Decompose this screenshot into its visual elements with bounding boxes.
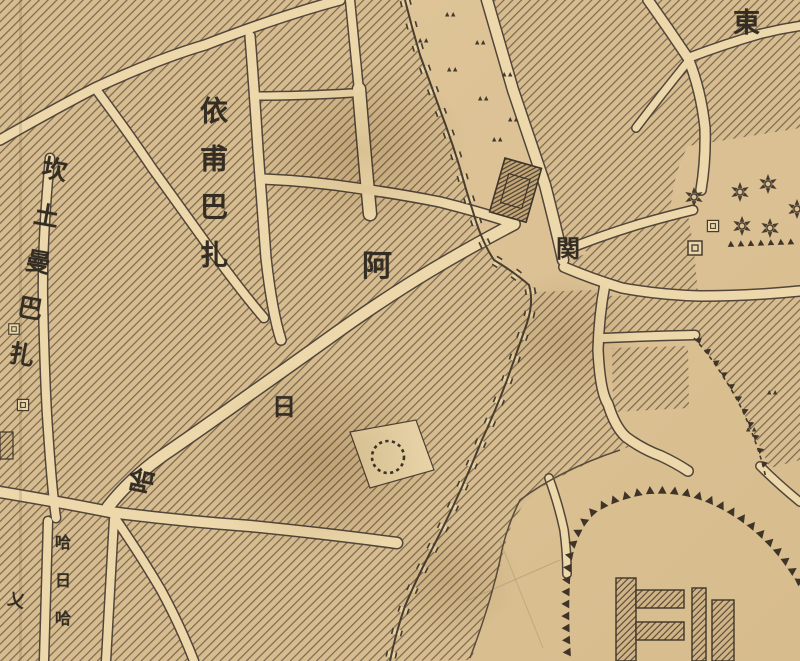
triangle-hachure-icon: [788, 238, 795, 244]
fold-line: [500, 541, 543, 648]
triangle-hachure-icon: [561, 600, 569, 609]
triangle-hachure-icon: [747, 522, 756, 531]
triangle-hachure-icon: [580, 519, 589, 527]
triangle-hachure-icon: [562, 636, 570, 645]
mosque-square-icon: [688, 241, 702, 255]
triangle-hachure-icon: [694, 492, 702, 501]
triangle-hachure-icon: [658, 486, 667, 494]
triangle-hachure-icon: [561, 612, 569, 621]
historical-map: 依甫巴扎 坎土曼巴扎 阿 日 哈 関 東 哈日哈 乂: [0, 0, 800, 661]
mosque-square-icon: [707, 220, 718, 231]
triangle-hachure-icon: [562, 588, 570, 597]
triangle-hachure-icon: [634, 488, 643, 497]
triangle-hachure-icon: [563, 648, 571, 657]
mosque-square-icon: [9, 324, 20, 335]
triangle-hachure-icon: [611, 495, 619, 504]
triangle-hachure-icon: [778, 239, 785, 245]
triangle-hachure-icon: [601, 501, 609, 510]
triangle-hachure-icon: [705, 496, 713, 505]
triangle-hachure-icon: [768, 239, 775, 245]
triangle-hachure-icon: [716, 501, 724, 510]
triangle-hachure-icon: [781, 558, 790, 566]
dotted-circle-enclosure: [372, 441, 404, 473]
triangle-hachure-icon: [765, 539, 774, 548]
star-icon: [761, 218, 778, 238]
star-icon: [733, 216, 750, 236]
triangle-hachure-icon: [758, 240, 765, 246]
triangle-hachure-icon: [573, 530, 582, 538]
triangle-hachure-icon: [748, 240, 755, 246]
triangle-hachure-icon: [738, 240, 745, 246]
star-icon: [788, 199, 800, 219]
triangle-hachure-icon: [623, 491, 631, 500]
star-icon: [759, 174, 776, 194]
triangle-hachure-icon: [562, 624, 570, 633]
triangle-hachure-icon: [682, 488, 691, 497]
small-building-west: [0, 432, 13, 459]
map-svg: [0, 0, 800, 661]
triangle-hachure-icon: [756, 530, 765, 539]
triangle-hachure-icon: [727, 507, 735, 516]
triangle-hachure-icon: [788, 568, 797, 576]
triangle-hachure-icon: [670, 487, 679, 495]
triangle-hachure-icon: [795, 579, 800, 587]
mosque-square-icon: [17, 399, 28, 410]
compound-buildings: [616, 578, 734, 661]
triangle-hachure-icon: [737, 514, 745, 523]
triangle-hachure-icon: [773, 548, 782, 557]
triangle-hachure-icon: [646, 486, 655, 494]
triangle-hachure-icon: [589, 508, 598, 517]
gate-tower: [490, 158, 542, 222]
triangle-hachure-icon: [728, 241, 735, 247]
star-icon: [731, 182, 748, 202]
block-square-east: [612, 346, 689, 412]
